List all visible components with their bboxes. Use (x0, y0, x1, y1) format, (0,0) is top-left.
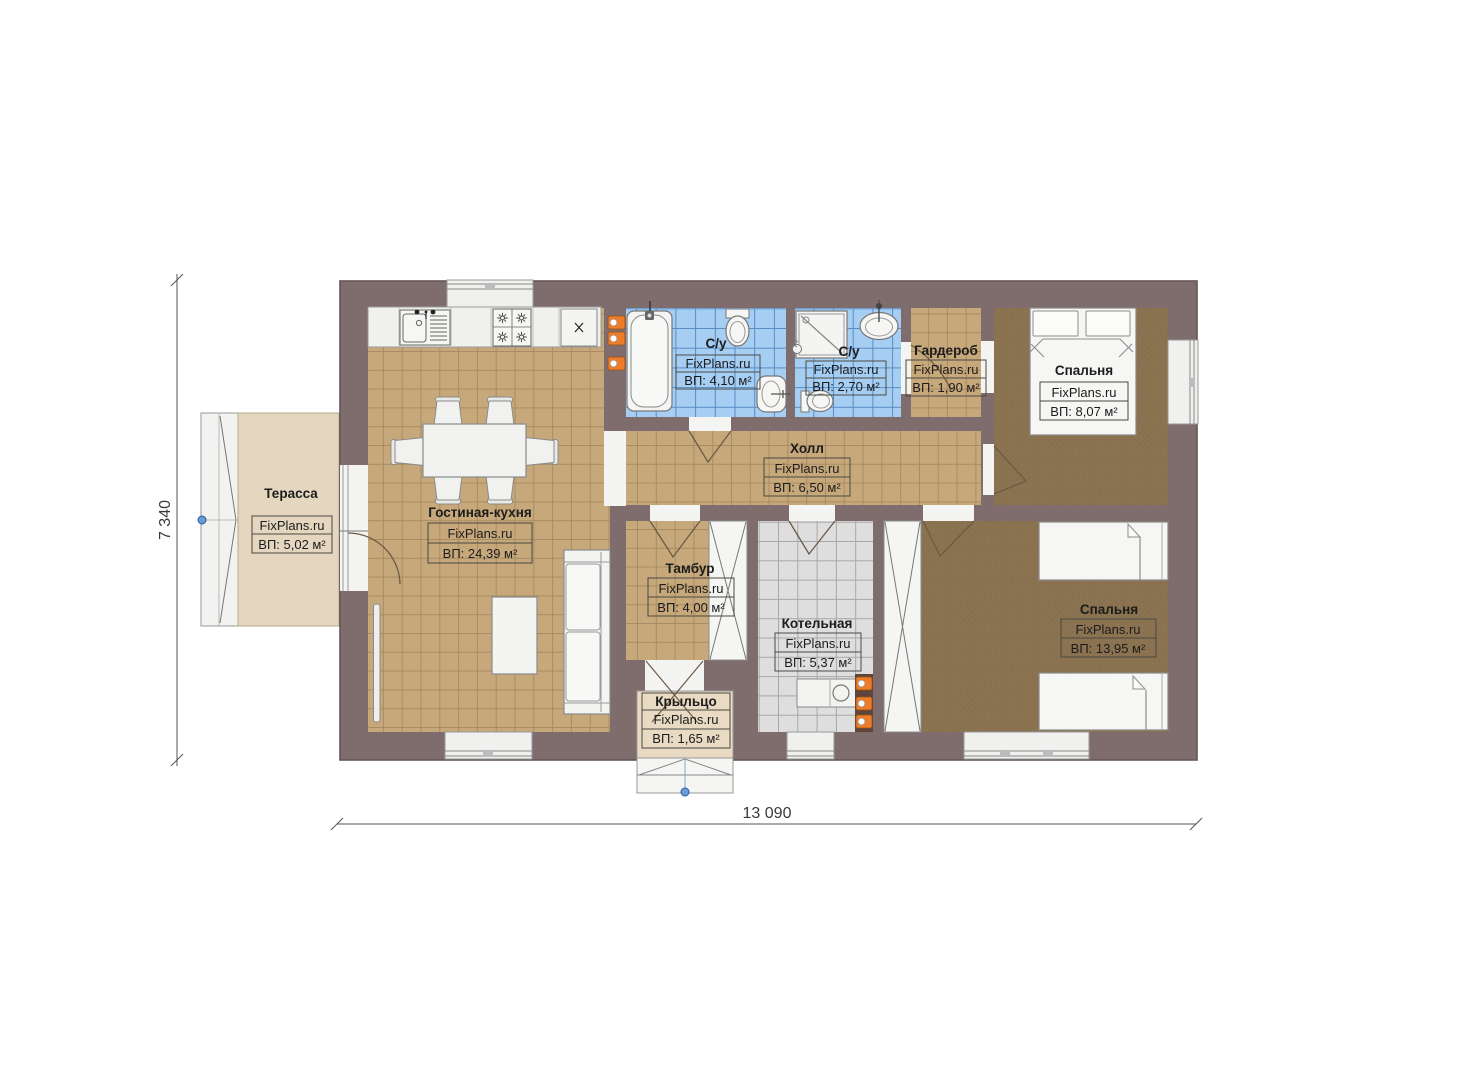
svg-text:ВП: 4,00 м²: ВП: 4,00 м² (657, 600, 725, 615)
svg-text:ВП: 24,39 м²: ВП: 24,39 м² (443, 546, 518, 561)
svg-text:Спальня: Спальня (1055, 363, 1113, 378)
svg-text:ВП: 1,65 м²: ВП: 1,65 м² (652, 731, 720, 746)
svg-text:ВП: 5,02 м²: ВП: 5,02 м² (258, 537, 326, 552)
svg-text:ВП: 13,95 м²: ВП: 13,95 м² (1071, 641, 1146, 656)
svg-text:Гардероб: Гардероб (914, 343, 978, 358)
svg-text:С/у: С/у (705, 336, 727, 351)
svg-text:Гостиная-кухня: Гостиная-кухня (428, 505, 531, 520)
svg-text:Спальня: Спальня (1080, 602, 1138, 617)
svg-text:FixPlans.ru: FixPlans.ru (1051, 385, 1116, 400)
svg-text:FixPlans.ru: FixPlans.ru (685, 356, 750, 371)
svg-text:ВП: 1,90 м²: ВП: 1,90 м² (912, 380, 980, 395)
svg-text:Тамбур: Тамбур (666, 561, 715, 576)
svg-text:FixPlans.ru: FixPlans.ru (447, 526, 512, 541)
svg-text:FixPlans.ru: FixPlans.ru (813, 362, 878, 377)
svg-text:С/у: С/у (838, 344, 860, 359)
svg-text:Холл: Холл (790, 441, 824, 456)
svg-text:ВП: 4,10 м²: ВП: 4,10 м² (684, 373, 752, 388)
svg-text:ВП: 5,37 м²: ВП: 5,37 м² (784, 655, 852, 670)
svg-text:FixPlans.ru: FixPlans.ru (913, 362, 978, 377)
svg-text:Котельная: Котельная (782, 616, 853, 631)
svg-text:FixPlans.ru: FixPlans.ru (658, 581, 723, 596)
svg-text:ВП: 8,07 м²: ВП: 8,07 м² (1050, 404, 1118, 419)
svg-text:Терасса: Терасса (264, 486, 318, 501)
svg-text:FixPlans.ru: FixPlans.ru (1075, 622, 1140, 637)
svg-text:FixPlans.ru: FixPlans.ru (774, 461, 839, 476)
svg-text:ВП: 2,70 м²: ВП: 2,70 м² (812, 379, 880, 394)
svg-text:ВП: 6,50 м²: ВП: 6,50 м² (773, 480, 841, 495)
svg-text:FixPlans.ru: FixPlans.ru (653, 712, 718, 727)
svg-text:Крыльцо: Крыльцо (655, 694, 716, 709)
svg-text:FixPlans.ru: FixPlans.ru (259, 518, 324, 533)
svg-text:FixPlans.ru: FixPlans.ru (785, 636, 850, 651)
svg-text:7 340: 7 340 (157, 500, 174, 540)
svg-text:13 090: 13 090 (743, 805, 792, 822)
